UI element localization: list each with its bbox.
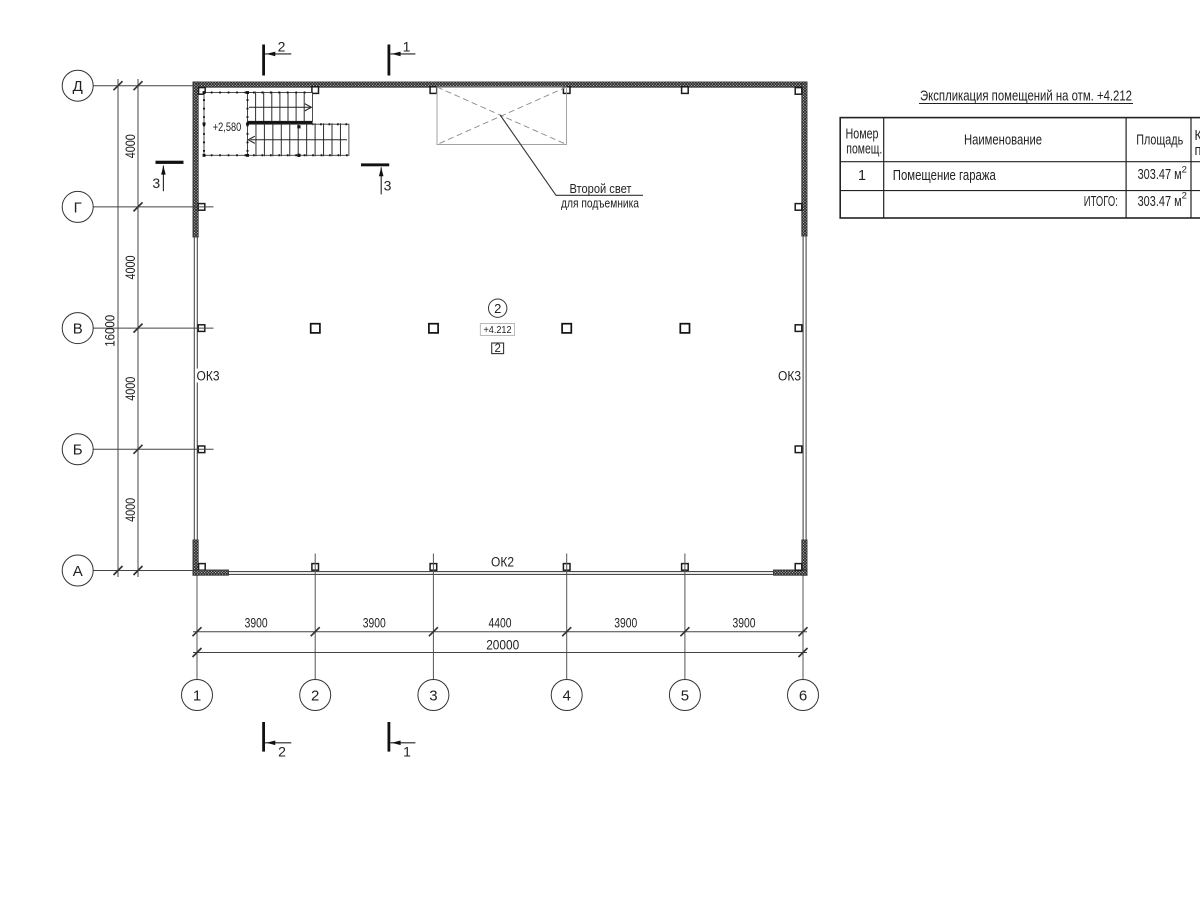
svg-text:3900: 3900 — [614, 615, 637, 630]
svg-text:помещ.: помещ. — [846, 142, 882, 158]
svg-text:3: 3 — [152, 175, 160, 191]
svg-text:1: 1 — [193, 687, 201, 704]
svg-text:Помещение гаража: Помещение гаража — [893, 168, 997, 184]
svg-text:16000: 16000 — [103, 315, 118, 347]
svg-text:Б: Б — [73, 442, 83, 459]
svg-text:4: 4 — [563, 687, 571, 704]
svg-text:3: 3 — [384, 178, 392, 194]
svg-text:А: А — [73, 563, 83, 580]
svg-text:ОК2: ОК2 — [491, 555, 514, 570]
svg-text:Площадь: Площадь — [1136, 131, 1183, 148]
svg-text:1: 1 — [858, 168, 866, 184]
svg-text:2: 2 — [494, 301, 501, 316]
svg-text:4400: 4400 — [489, 615, 512, 630]
svg-text:2: 2 — [278, 39, 286, 55]
svg-text:+4.212: +4.212 — [484, 325, 512, 336]
svg-text:ОК3: ОК3 — [778, 369, 801, 384]
svg-text:303.47 м: 303.47 м — [1138, 194, 1182, 210]
svg-text:ИТОГО:: ИТОГО: — [1084, 194, 1118, 210]
svg-text:6: 6 — [799, 687, 807, 704]
svg-text:Ка: Ка — [1195, 128, 1200, 144]
svg-text:Наименование: Наименование — [964, 131, 1042, 148]
svg-text:3900: 3900 — [245, 615, 268, 630]
svg-text:4000: 4000 — [123, 377, 138, 401]
svg-text:20000: 20000 — [486, 637, 519, 652]
svg-text:2: 2 — [278, 744, 286, 760]
svg-text:Экспликация помещений на отм.: Экспликация помещений на отм. +4.212 — [920, 88, 1132, 105]
svg-text:2: 2 — [1182, 165, 1187, 176]
svg-text:Д: Д — [73, 78, 83, 95]
svg-text:Второй свет: Второй свет — [570, 182, 632, 196]
svg-text:В: В — [73, 321, 83, 338]
svg-text:3900: 3900 — [363, 615, 386, 630]
svg-text:Номер: Номер — [846, 127, 879, 143]
svg-text:по: по — [1195, 143, 1200, 159]
svg-text:1: 1 — [403, 39, 411, 55]
svg-text:2: 2 — [311, 687, 319, 704]
svg-text:2: 2 — [1182, 191, 1187, 202]
svg-text:4000: 4000 — [123, 134, 138, 158]
svg-text:4000: 4000 — [123, 498, 138, 522]
svg-text:Г: Г — [74, 199, 82, 216]
svg-text:1: 1 — [403, 744, 411, 760]
svg-text:ОК3: ОК3 — [197, 369, 220, 384]
svg-text:+2,580: +2,580 — [213, 120, 242, 134]
svg-text:303.47 м: 303.47 м — [1138, 167, 1182, 183]
svg-text:для подъемника: для подъемника — [561, 197, 639, 211]
svg-text:3: 3 — [429, 687, 437, 704]
svg-text:4000: 4000 — [123, 256, 138, 280]
svg-text:2: 2 — [494, 343, 500, 355]
svg-text:3900: 3900 — [733, 615, 756, 630]
svg-text:5: 5 — [681, 687, 689, 704]
